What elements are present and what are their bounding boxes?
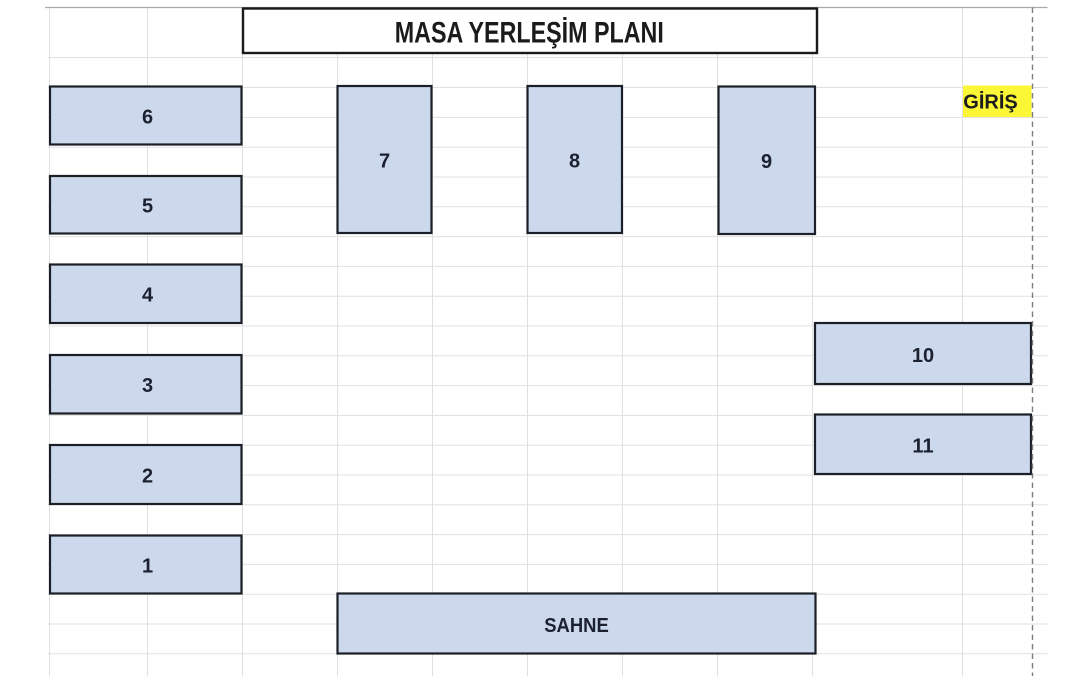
svg-text:6: 6 [142, 107, 153, 129]
svg-text:5: 5 [142, 196, 153, 218]
svg-text:MASA YERLEŞİM PLANI: MASA YERLEŞİM PLANI [395, 17, 664, 50]
svg-text:7: 7 [379, 151, 390, 173]
svg-text:1: 1 [142, 556, 153, 578]
svg-text:GİRİŞ: GİRİŞ [963, 91, 1017, 114]
svg-text:2: 2 [142, 466, 153, 488]
svg-text:9: 9 [761, 151, 772, 173]
svg-text:8: 8 [569, 151, 580, 173]
svg-text:11: 11 [912, 436, 933, 458]
svg-text:3: 3 [142, 375, 153, 397]
svg-text:4: 4 [142, 285, 154, 307]
svg-text:10: 10 [912, 345, 934, 367]
svg-text:SAHNE: SAHNE [544, 615, 609, 637]
